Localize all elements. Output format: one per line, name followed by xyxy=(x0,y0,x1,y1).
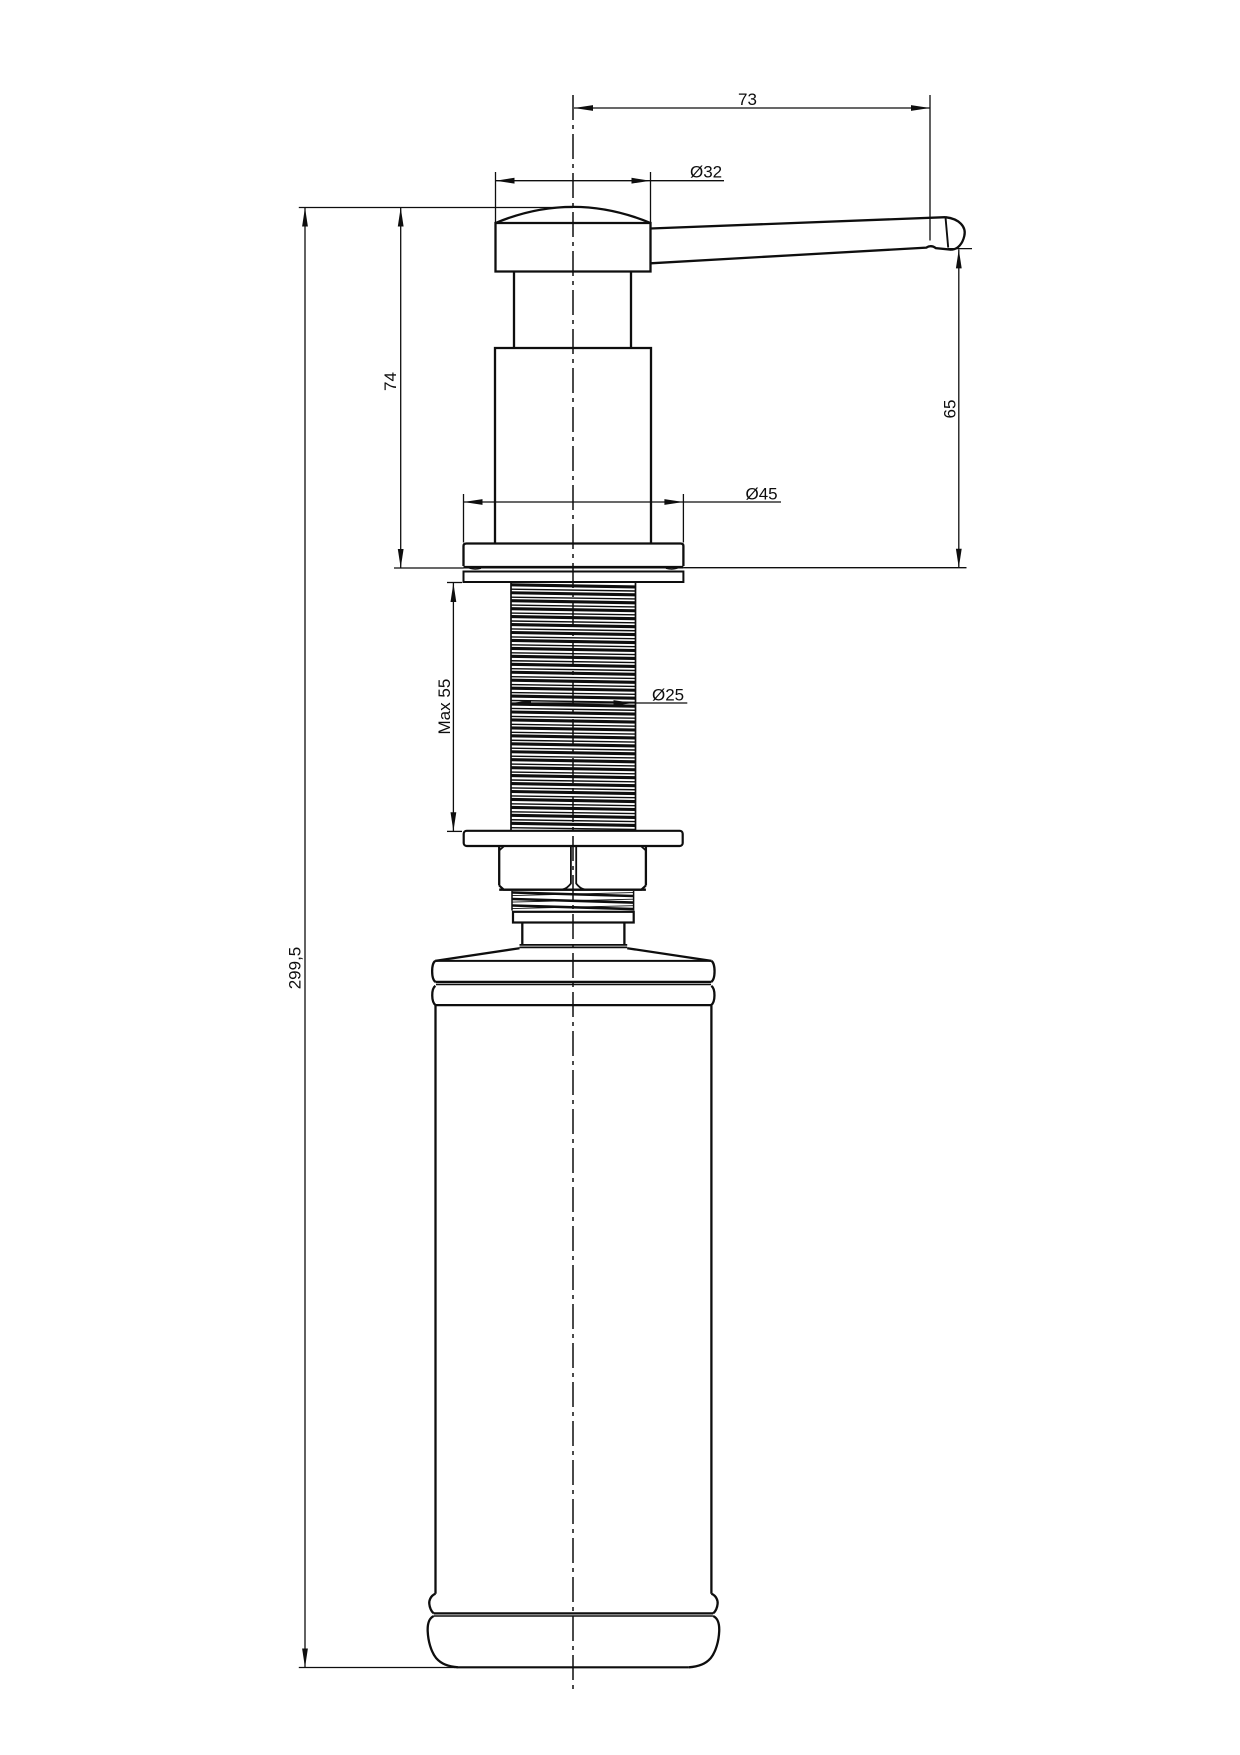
svg-text:65: 65 xyxy=(940,400,959,419)
svg-text:Ø45: Ø45 xyxy=(746,484,778,503)
svg-text:74: 74 xyxy=(381,372,400,391)
svg-text:73: 73 xyxy=(738,90,757,109)
svg-text:Ø32: Ø32 xyxy=(690,162,722,181)
svg-text:Ø25: Ø25 xyxy=(652,685,684,704)
svg-text:299,5: 299,5 xyxy=(286,947,305,990)
svg-text:Max 55: Max 55 xyxy=(435,679,454,735)
